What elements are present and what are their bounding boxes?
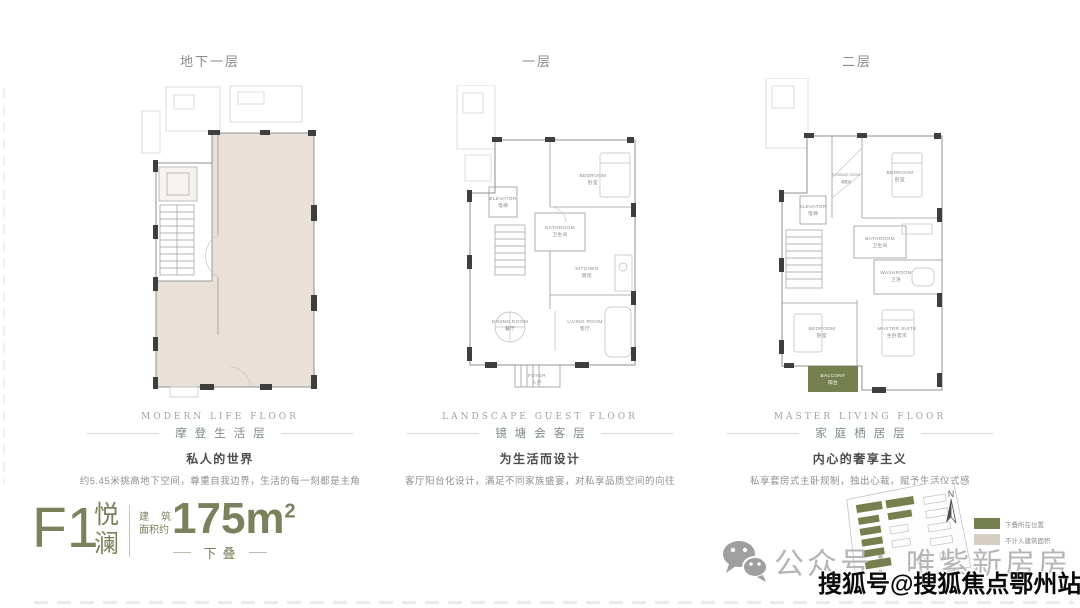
rule-left xyxy=(727,433,799,434)
sohu-watermark: 搜狐号@搜狐焦点鄂州站 xyxy=(818,564,1080,599)
unit-name-top: 悦 xyxy=(94,501,119,530)
unit-type: 下叠 xyxy=(168,543,272,562)
legend-label-unit-location: 下叠所在位置 xyxy=(1005,519,1044,529)
room-label-bedroom-cn: 卧室 xyxy=(895,176,905,183)
area-superscript: 2 xyxy=(285,500,296,522)
area-number: 175m xyxy=(172,494,285,543)
room-label-elevator-cn: 电梯 xyxy=(808,210,818,217)
caption-basement-en: MODERN LIFE FLOOR xyxy=(50,412,390,422)
room-label-kitchen-cn: 厨房 xyxy=(582,272,592,279)
room-label-dining: DINING ROOM xyxy=(492,319,528,325)
caption-first-floor-cn: 镜塘会客层 xyxy=(495,425,593,441)
caption-basement: MODERN LIFE FLOOR 摩登生活层 私人的世界 约5.45米挑高地下… xyxy=(50,412,390,487)
room-label-balcony: BALCONY xyxy=(820,373,846,379)
room-label-dining-cn: 餐厅 xyxy=(505,325,515,332)
caption-second-floor-headline: 内心的奢享主义 xyxy=(690,450,1030,467)
room-label-bedroom-cn: 卧室 xyxy=(588,179,598,186)
room-label-bedroom: BEDROOM xyxy=(580,173,607,179)
floorplan-flyer: { "floors": [ { "header": "地下一层", "capti… xyxy=(0,0,1080,608)
unit-code: F1 xyxy=(32,498,99,558)
rule-right xyxy=(281,433,353,434)
room-label-kitchen: KITCHEN xyxy=(575,266,598,272)
left-disclaimer-line xyxy=(3,88,5,484)
caption-basement-desc: 约5.45米挑高地下空间，尊重自我边界，生活的每一刻都是主角 xyxy=(50,473,390,487)
room-label-foyer: FOYER xyxy=(528,373,546,379)
dash-left xyxy=(173,552,191,553)
room-label-bedroom2: BEDROOM xyxy=(809,326,836,332)
room-label-master-cn: 主卧套房 xyxy=(887,332,907,339)
stairs xyxy=(160,205,194,275)
rule-right xyxy=(601,433,673,434)
caption-first-floor-en: LANDSCAPE GUEST FLOOR xyxy=(370,412,710,422)
room-label-washroom-cn: 卫浴 xyxy=(891,276,901,283)
caption-second-floor-en: MASTER LIVING FLOOR xyxy=(690,412,1030,422)
caption-basement-cn: 摩登生活层 xyxy=(175,425,273,441)
caption-second-floor-cn: 家庭栖居层 xyxy=(815,425,913,441)
floorplan-second-floor: STORAGE ROOM 储藏间 BEDROOM 卧室 ELEVATOR 电梯 … xyxy=(762,78,950,400)
room-label-balcony-cn: 阳台 xyxy=(828,379,838,386)
wechat-icon xyxy=(720,537,770,587)
room-label-storage: STORAGE ROOM xyxy=(832,173,860,177)
rule-left xyxy=(407,433,479,434)
floorplan-first-floor: BEDROOM 卧室 ELEVATOR 电梯 BATHROOM 卫生间 KITC… xyxy=(455,85,640,395)
neighbor-outline xyxy=(457,85,495,181)
bottom-disclaimer-line xyxy=(34,601,1074,604)
room-label-bedroom: BEDROOM xyxy=(887,170,914,176)
caption-basement-headline: 私人的世界 xyxy=(50,450,390,467)
room-label-living: LIVING ROOM xyxy=(567,319,602,325)
unit-type-label: 下叠 xyxy=(203,543,241,562)
compass: N xyxy=(941,489,961,525)
room-label-washroom: WASHROOM xyxy=(880,270,912,276)
legend-item-unit-location: 下叠所在位置 xyxy=(974,518,1051,529)
area-value: 175m2 xyxy=(172,496,296,542)
caption-first-floor-desc: 客厅阳台化设计，满足不同家族盛宴，对私享品质空间的向往 xyxy=(370,473,710,487)
unit-name: 悦 澜 xyxy=(94,501,119,559)
neighbor-outline xyxy=(766,78,808,148)
balcony-area xyxy=(808,366,858,392)
caption-first-floor: LANDSCAPE GUEST FLOOR 镜塘会客层 为生活而设计 客厅阳台化… xyxy=(370,412,710,487)
room-label-storage-cn: 储藏间 xyxy=(841,179,852,184)
room-label-elevator: ELEVATOR xyxy=(489,196,516,202)
dash-right xyxy=(249,552,267,553)
room-label-living-cn: 客厅 xyxy=(580,325,590,332)
header-basement-floor: 地下一层 xyxy=(110,51,310,70)
room-label-master: MASTER SUITE xyxy=(877,326,916,332)
floorplan-basement xyxy=(140,85,330,400)
room-label-bathroom: BATHROOM xyxy=(865,236,895,242)
room-label-bathroom: BATHROOM xyxy=(545,225,575,231)
rule-right xyxy=(921,433,993,434)
header-second-floor: 二层 xyxy=(757,51,957,70)
unit-divider xyxy=(129,505,130,557)
rule-left xyxy=(87,433,159,434)
room-label-bedroom2-cn: 卧室 xyxy=(817,332,827,339)
caption-first-floor-headline: 为生活而设计 xyxy=(370,450,710,467)
north-arrow-icon xyxy=(944,499,958,525)
compass-north-label: N xyxy=(941,489,961,499)
room-label-bathroom-cn: 卫生间 xyxy=(872,242,887,249)
legend-swatch-highlight xyxy=(974,518,1000,529)
room-label-elevator: ELEVATOR xyxy=(799,204,826,210)
header-first-floor: 一层 xyxy=(437,51,637,70)
elevator-shaft xyxy=(159,167,197,201)
unit-name-bottom: 澜 xyxy=(94,530,119,559)
caption-second-floor: MASTER LIVING FLOOR 家庭栖居层 内心的奢享主义 私享套房式主… xyxy=(690,412,1030,487)
room-label-elevator-cn: 电梯 xyxy=(498,202,508,209)
room-label-bathroom-cn: 卫生间 xyxy=(552,231,567,238)
room-label-foyer-cn: 入户 xyxy=(532,379,542,386)
